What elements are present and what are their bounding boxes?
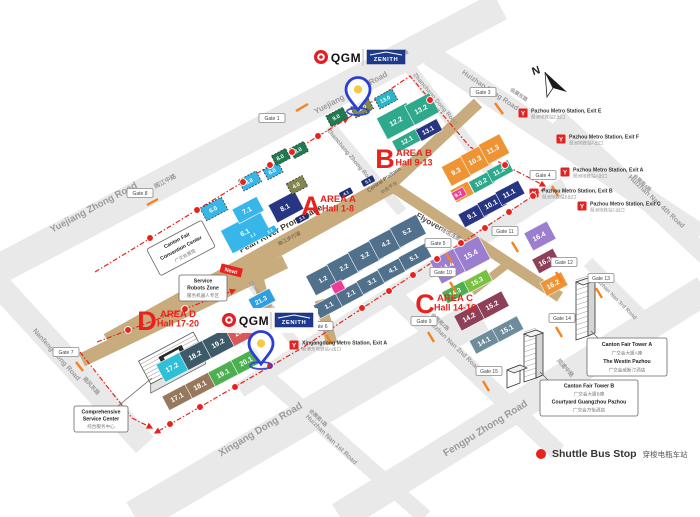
gate-number: Gate 5 [430,241,445,247]
map-canvas: Yuejiang Zhong Road阅江中路Yuejiang Zhong Ro… [0,0,700,517]
compass-n-label: N [530,64,541,78]
gate-number: Gate 15 [480,369,498,375]
hall-6.0: 6.0 [200,197,228,221]
callout-line: Courtyard Guangzhou Pazhou [552,400,627,406]
tower-side [588,278,595,336]
callout-body: Canton FairConvention Center广交会展馆 [147,220,216,276]
shuttle-stop [267,162,274,169]
metro-exit: YXingangdong Metro Station, Exit A新港东地铁站… [290,341,388,353]
hall-8.0: 8.0 [271,148,290,165]
hall-16.4: 16.4 [524,221,556,251]
booth-location-pin-icon [249,332,273,370]
metro-exit-name-cn: 琶洲地铁站C出口 [590,207,625,214]
shuttle-stop [530,193,537,200]
metro-exit-name-cn: 琶洲地铁站A出口 [573,173,608,180]
shuttle-legend-label: Shuttle Bus Stop [552,448,637,460]
gate-number: Gate 10 [434,270,452,276]
gate-tick [556,327,562,337]
gate-number: Gate 7 [58,350,73,356]
gate-number: Gate 11 [496,229,514,235]
area-halls: Hall 17-20 [157,319,199,329]
callout-body: ServiceRobots Zone服务机器人专区 [179,275,227,301]
shuttle-stop [232,384,239,391]
layer-halls: 6.06.17.18.18.08.08.08.04.09.012.013.012… [156,89,568,411]
qgm-logo-text: QGM [331,51,361,65]
callout-body: ComprehensiveService Center综合服务中心 [74,406,128,432]
shuttle-stop [359,305,366,312]
callout-line: 广交会大厦B座 [574,391,605,398]
gate-number: Gate 12 [555,260,573,266]
callout-line: Canton Fair Tower A [602,342,652,348]
gate-tick [596,288,602,298]
booth-location-pin-icon [346,78,370,116]
shuttle-stop [167,421,174,428]
qgm-icon-core [319,55,323,59]
shuttle-stop [289,149,296,156]
shuttle-stop-dot [536,449,546,459]
tower-front [524,330,536,382]
pin-center-dot [353,85,363,95]
area-letter: A [301,191,321,221]
callout-line: 广交会大厦A座 [612,349,643,356]
shuttle-stop [434,256,441,263]
callout-tower-a: Canton Fair Tower A广交会大厦A座The Westin Paz… [587,331,667,376]
shuttle-stop [147,235,154,242]
shuttle-stop [194,207,201,214]
callout-line: The Westin Pazhou [603,359,650,365]
callout-line: 综合服务中心 [87,423,115,430]
gate-number: Gate 9 [416,319,431,325]
metro-exit: YPazhou Metro Station, Exit B琶洲地铁站B出口 [530,189,613,201]
callout-line: Comprehensive [82,409,121,415]
tower-side [536,330,543,378]
metro-exit-name-cn: 琶洲地铁站B出口 [542,194,577,201]
shuttle-stop [482,225,489,232]
gate-number: Gate 14 [553,316,571,322]
shuttle-stop [386,288,393,295]
metro-icon-glyph: Y [521,110,526,117]
shuttle-stop [427,97,434,104]
tower-building [576,276,595,340]
callout-line: 服务机器人专区 [187,292,220,299]
zenith-logo-text: ZENITH [282,320,307,326]
metro-exit: YPazhou Metro Station, Exit F琶洲地铁站F出口 [557,135,640,147]
shuttle-stop [506,209,513,216]
metro-icon-glyph: Y [563,169,568,176]
gate-number: Gate 1 [264,116,279,122]
metro-icon-glyph: Y [292,342,297,349]
gate-number: Gate 8 [132,191,147,197]
callout-convention-center: Canton FairConvention Center广交会展馆 [147,220,216,276]
area-halls: Hall 9-13 [395,158,432,168]
callout-leader [118,378,152,406]
gate-tick [512,242,518,252]
qgm-icon-core [227,318,231,322]
shuttle-stop [125,327,132,334]
shuttle-stop [458,240,465,247]
shuttle-stop [315,133,322,140]
layer-compass: N [530,64,567,97]
pin-center-dot [256,339,266,349]
area-halls: Hall 14-16 [434,303,476,313]
qgm-logo-text: QGM [239,314,269,328]
callout-line: Canton Fair Tower B [564,384,615,390]
metro-icon-glyph: Y [580,203,585,210]
area-label-d: DAREA DHall 17-20 [137,306,199,336]
metro-exit-name-cn: 琶洲地铁站E出口 [531,114,566,121]
qgm-zenith-logo: QGMZENITH [314,49,405,66]
gate-gate-11: Gate 11 [492,227,518,253]
area-letter: C [415,289,435,319]
callout-line: Service Center [83,417,119,423]
qgm-zenith-logo: QGMZENITH [212,308,318,333]
callout-line: 广交会万怡酒店 [573,407,606,414]
shuttle-stop [502,162,509,169]
shuttle-stop [197,404,204,411]
shuttle-bus-legend: Shuttle Bus Stop 穿梭电瓶车站 [536,448,688,460]
callout-line: 广交会威斯汀酒店 [609,366,646,373]
gate-gate-14: Gate 14 [549,314,575,338]
gate-number: Gate 4 [535,173,550,179]
road-name: Zhanchang Zhong Road [325,128,374,185]
metro-exit-name-cn: 琶洲地铁站F出口 [569,140,603,147]
metro-exit: YPazhou Metro Station, Exit E琶洲地铁站E出口 [519,109,602,121]
shuttle-stop [240,179,247,186]
tower-front [576,278,588,340]
area-letter: D [137,306,157,336]
gate-number: Gate 13 [592,276,610,282]
area-letter: B [375,144,395,174]
shuttle-legend-label-cn: 穿梭电瓶车站 [643,449,688,460]
callout-body: Canton Fair Tower A广交会大厦A座The Westin Paz… [587,338,667,376]
hall-15.1: 15.1 [492,316,524,342]
callout-line: Robots Zone [187,286,219,292]
canton-fair-map: Yuejiang Zhong Road阅江中路Yuejiang Zhong Ro… [0,0,700,517]
callout-body: Canton Fair Tower B广交会大厦B座Courtyard Guan… [540,380,638,416]
metro-icon-glyph: Y [559,136,564,143]
area-halls: Hall 1-8 [322,204,354,214]
callout-line: Service [194,278,213,284]
shuttle-stop [410,272,417,279]
zenith-logo-text: ZENITH [374,57,399,63]
gate-number: Gate 3 [475,90,490,96]
metro-exit-name-cn: 新港东地铁站A出口 [302,346,341,353]
